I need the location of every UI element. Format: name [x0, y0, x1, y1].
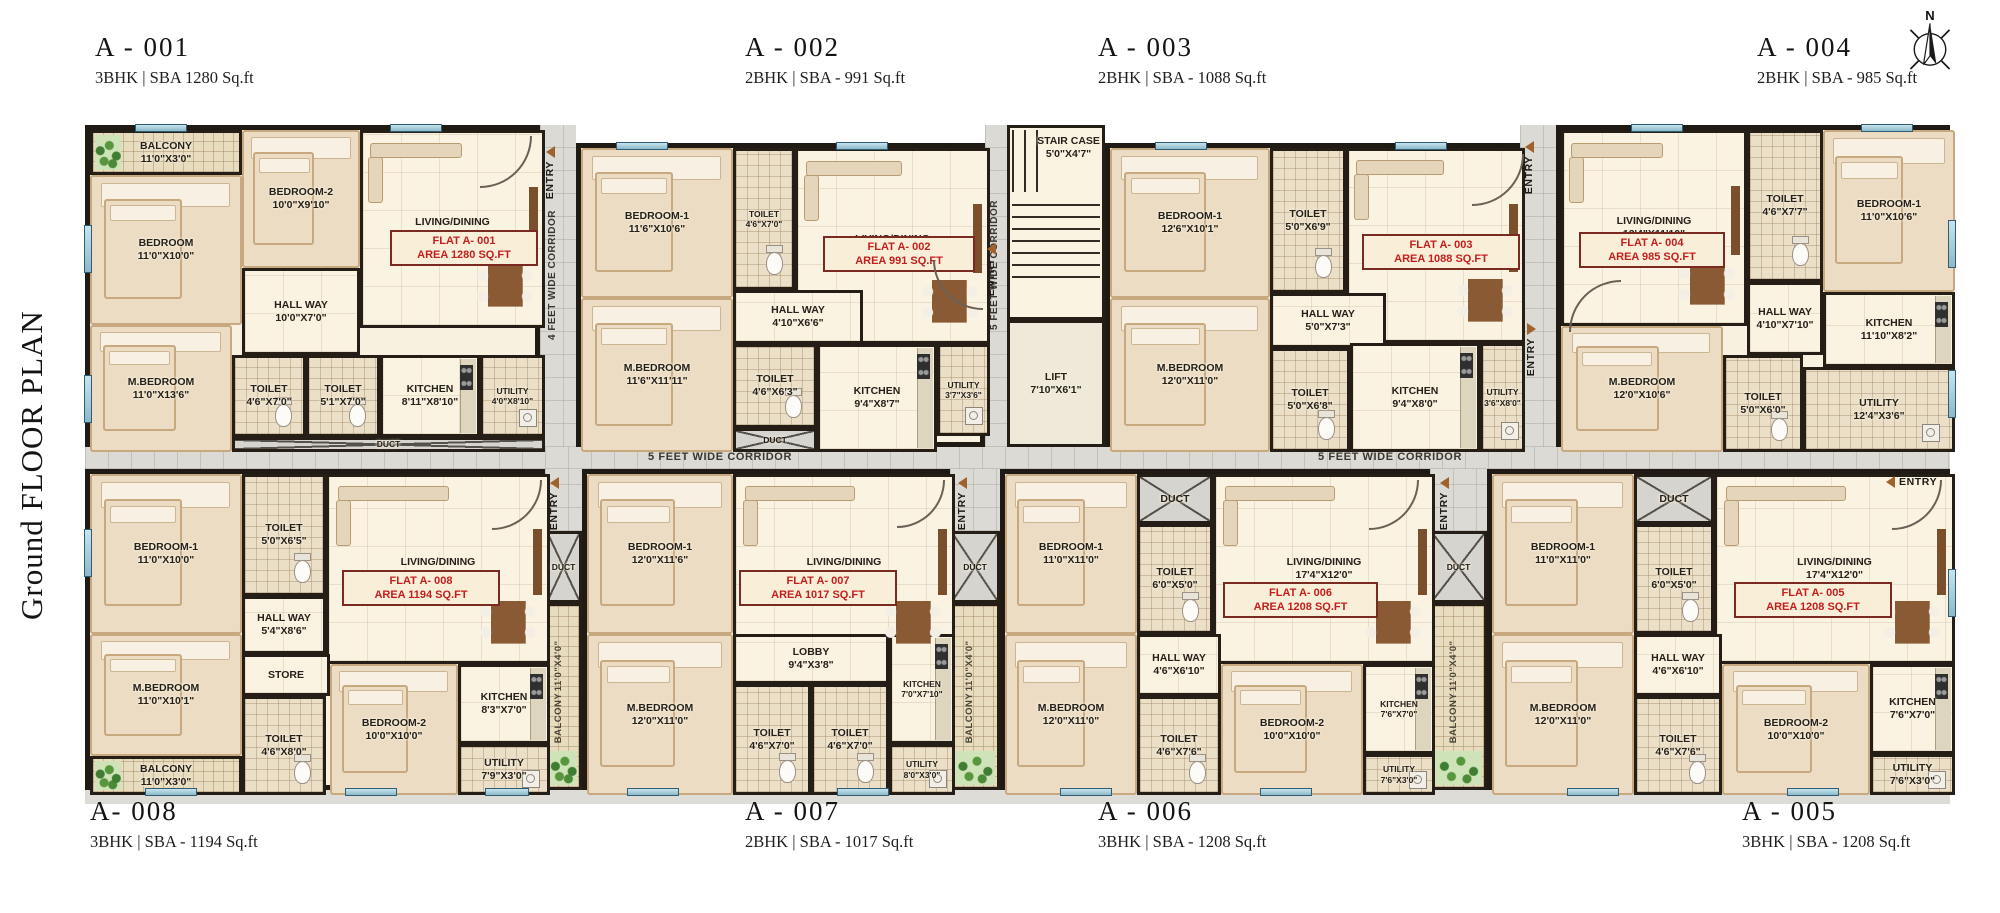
room-a-001-utility-label: UTILITY4'0"X8'10" [483, 358, 542, 434]
room-a-005-hall-way-dims: 4'6"X6'10" [1652, 665, 1703, 678]
plants-icon [1435, 751, 1482, 785]
flat-a-007: BEDROOM-112'0"X11'6"LIVING/DINING16'9"X1… [582, 469, 950, 790]
room-a-007-bedroom-1-label: BEDROOM-112'0"X11'6" [589, 476, 731, 632]
room-a-005-toilet-name: TOILET [1655, 566, 1692, 579]
room-a-008-kitchen-label: KITCHEN8'3"X7'0" [461, 667, 547, 741]
room-a-008-bedroom-2-label: BEDROOM-210'0"X10'0" [332, 666, 456, 793]
flat-label: FLAT A- 007 [787, 574, 850, 588]
room-a-008-utility-label: UTILITY7'9"X3'0" [461, 747, 547, 792]
unit-header-a-004: A - 0042BHK | SBA - 985 Sq.ft [1757, 32, 1917, 88]
corridor-label: 5 FEET WIDE CORRIDOR [1318, 451, 1462, 463]
room-a-002-toilet-label: TOILET4'6"X7'0" [736, 151, 792, 287]
room-a-006-kitchen-name: KITCHEN [1380, 699, 1418, 709]
room-a-006-bedroom-2-name: BEDROOM-2 [1260, 717, 1324, 730]
room-a-007-toilet-label: TOILET4'6"X7'0" [736, 687, 808, 792]
room-a-001-toilet-label: TOILET4'6"X7'0" [235, 358, 303, 434]
unit-spec: 3BHK | SBA - 1194 Sq.ft [90, 832, 258, 852]
room-a-006-toilet: TOILET6'0"X5'0" [1137, 524, 1213, 634]
room-a-004-bedroom-1-label: BEDROOM-111'0"X10'6" [1825, 132, 1953, 290]
unit-id: A - 001 [95, 32, 254, 63]
room-a-001-m-bedroom-dims: 11'0"X13'6" [133, 389, 189, 402]
room-a-007-lobby-label: LOBBY9'4"X3'8" [736, 637, 886, 681]
room-a-001-m-bedroom: M.BEDROOM11'0"X13'6" [90, 325, 232, 452]
room-a-005-utility: UTILITY7'6"X3'0" [1870, 754, 1955, 795]
entry-arrow-icon [550, 477, 559, 489]
room-a-007-kitchen-name: KITCHEN [903, 679, 941, 689]
room-a-001-bedroom-label: BEDROOM11'0"X10'0" [92, 177, 240, 323]
room-a-004-toilet-label: TOILET5'0"X6'0" [1726, 358, 1800, 449]
room-a-001-kitchen-name: KITCHEN [407, 383, 454, 396]
unit-spec: 3BHK | SBA - 1208 Sq.ft [1098, 832, 1266, 852]
room-a-008-store: STORE [242, 654, 330, 696]
room-a-005-toilet-dims: 6'0"X5'0" [1651, 579, 1696, 592]
flat-label: FLAT A- 002 [868, 240, 931, 254]
room-a-005-bedroom-2: BEDROOM-210'0"X10'0" [1722, 664, 1870, 795]
room-a-002-bedroom-1-dims: 11'6"X10'6" [629, 223, 685, 236]
room-a-001-bedroom-2-name: BEDROOM-2 [269, 186, 333, 199]
room-a-001-toilet-label: TOILET5'1"X7'0" [309, 358, 377, 434]
entry-marker: ENTRY [956, 477, 968, 530]
duct-label: DUCT [548, 534, 579, 600]
room-a-008-m-bedroom-name: M.BEDROOM [133, 682, 200, 695]
flat-label: FLAT A- 006 [1269, 586, 1332, 600]
room-a-001-toilet-name: TOILET [250, 383, 287, 396]
room-a-003-hall-way: HALL WAY5'0"X7'3" [1270, 293, 1386, 348]
room-a-007-toilet: TOILET4'6"X7'0" [811, 684, 889, 795]
room-a-005-toilet: TOILET6'0"X5'0" [1634, 524, 1714, 634]
room-a-003-toilet-dims: 5'0"X6'9" [1285, 221, 1330, 234]
window-marker [145, 788, 197, 796]
flat-a-006: BEDROOM-111'0"X11'0"DUCTTOILET6'0"X5'0"L… [1000, 469, 1430, 790]
room-a-002-toilet-name: TOILET [756, 373, 793, 386]
room-a-005-duct: DUCT [1634, 474, 1714, 524]
entry-arrow-icon [546, 146, 555, 158]
page-title: Ground FLOOR PLAN [14, 222, 50, 708]
flat-area-label: AREA 1208 SQ.FT [1766, 600, 1860, 614]
flat-area-label: AREA 1194 SQ.FT [374, 588, 467, 602]
window-marker [1787, 788, 1839, 796]
room-a-005-utility-dims: 7'6"X3'0" [1890, 775, 1935, 788]
room-a-007-toilet: TOILET4'6"X7'0" [733, 684, 811, 795]
room-a-002-kitchen-label: KITCHEN9'4"X8'7" [820, 347, 934, 449]
flat-label: FLAT A- 004 [1621, 236, 1684, 250]
lift-label: LIFT7'10"X6'1" [1010, 323, 1102, 444]
entry-marker: ENTRY [1523, 141, 1535, 194]
room-a-007-toilet-name: TOILET [753, 727, 790, 740]
room-a-003-hall-way-dims: 5'0"X7'3" [1305, 321, 1350, 334]
room-a-003-toilet-label: TOILET5'0"X6'8" [1273, 351, 1347, 449]
room-a-007-toilet-dims: 4'6"X7'0" [749, 740, 794, 753]
room-a-003-kitchen-name: KITCHEN [1392, 385, 1439, 398]
room-a-002-bedroom-1-label: BEDROOM-111'6"X10'6" [583, 150, 731, 296]
room-a-001-bedroom-2: BEDROOM-210'0"X9'10" [242, 130, 360, 268]
duct-shaft: DUCT [1430, 531, 1487, 603]
window-marker [836, 142, 888, 150]
duct-name: DUCT [1447, 562, 1471, 572]
room-a-004-toilet-name: TOILET [1744, 391, 1781, 404]
room-a-001-duct-label: DUCT [235, 440, 542, 449]
room-a-008-kitchen-name: KITCHEN [481, 691, 528, 704]
room-a-004-bedroom-1: BEDROOM-111'0"X10'6" [1823, 130, 1955, 292]
room-a-005-toilet-label: TOILET4'6"X7'6" [1637, 699, 1719, 792]
stair-case-label: STAIR CASE5'0"X4'7" [1010, 128, 1102, 317]
room-a-001-duct: DUCT [232, 437, 545, 452]
room-a-008-m-bedroom: M.BEDROOM11'0"X10'1" [90, 634, 242, 756]
window-marker [84, 375, 92, 423]
flat-a-005: BEDROOM-111'0"X11'0"DUCTTOILET6'0"X5'0"L… [1487, 469, 1950, 790]
entry-marker: ENTRY [1438, 477, 1450, 530]
unit-id: A - 002 [745, 32, 905, 63]
room-a-003-bedroom-1: BEDROOM-112'6"X10'1" [1110, 148, 1270, 298]
entry-label: ENTRY [1525, 338, 1537, 376]
unit-id: A - 003 [1098, 32, 1266, 63]
room-a-005-toilet: TOILET4'6"X7'6" [1634, 696, 1722, 795]
room-a-007-lobby-name: LOBBY [793, 646, 830, 659]
room-a-003-bedroom-1-name: BEDROOM-1 [1158, 210, 1222, 223]
flat-id-box: FLAT A- 003AREA 1088 SQ.FT [1362, 234, 1520, 270]
room-a-002-toilet-dims: 4'6"X6'3" [752, 386, 797, 399]
room-a-004-m-bedroom: M.BEDROOM12'0"X10'6" [1561, 326, 1723, 452]
room-a-004-kitchen-label: KITCHEN11'10"X8'2" [1826, 295, 1952, 364]
room-a-006-m-bedroom-label: M.BEDROOM12'0"X11'0" [1007, 636, 1135, 793]
unit-id: A - 004 [1757, 32, 1917, 63]
lift-dims: 7'10"X6'1" [1030, 384, 1081, 397]
unit-spec: 2BHK | SBA - 991 Sq.ft [745, 68, 905, 88]
flat-area-label: AREA 1088 SQ.FT [1394, 252, 1488, 266]
stair-case-name: STAIR CASE [1037, 135, 1100, 148]
plants-icon [955, 751, 995, 785]
room-a-005-m-bedroom-label: M.BEDROOM12'0"X11'0" [1494, 636, 1632, 793]
unit-header-a-003: A - 0032BHK | SBA - 1088 Sq.ft [1098, 32, 1266, 88]
room-a-006-bedroom-2-label: BEDROOM-210'0"X10'0" [1223, 666, 1361, 793]
flat-a-004: LIVING/DINING13'4"X11'10"TOILET4'6"X7'7"… [1556, 125, 1950, 447]
room-a-006-hall-way-dims: 4'6"X6'10" [1153, 665, 1204, 678]
room-a-007-living-dining-name: LIVING/DINING [807, 556, 882, 569]
room-a-006-duct: DUCT [1137, 474, 1213, 524]
room-a-001-bedroom-2-label: BEDROOM-210'0"X9'10" [244, 132, 358, 266]
window-marker [1631, 124, 1683, 132]
room-a-005-bedroom-1: BEDROOM-111'0"X11'0" [1492, 474, 1634, 634]
unit-header-a-001: A - 0013BHK | SBA 1280 Sq.ft [95, 32, 254, 88]
room-a-002-duct-label: DUCT [736, 431, 814, 449]
room-a-003-kitchen: KITCHEN9'4"X8'0" [1350, 343, 1480, 452]
room-a-008-utility-name: UTILITY [484, 757, 524, 770]
room-a-001-balcony-label: BALCONY11'0"X3'0" [93, 133, 239, 172]
room-a-005-kitchen-name: KITCHEN [1889, 696, 1936, 709]
room-a-005-toilet-name: TOILET [1659, 733, 1696, 746]
room-a-003-utility: UTILITY3'6"X8'0" [1480, 343, 1525, 452]
room-a-001-kitchen: KITCHEN8'11"X8'10" [380, 355, 480, 437]
room-a-007-utility-dims: 8'0"X3'0" [904, 770, 941, 780]
window-marker [1861, 124, 1913, 132]
flat-area-label: AREA 1017 SQ.FT [771, 588, 865, 602]
room-a-005-kitchen: KITCHEN7'6"X7'0" [1870, 664, 1955, 754]
flat-a-002: BEDROOM-111'6"X10'6"TOILET4'6"X7'0"LIVIN… [576, 143, 985, 447]
room-a-007-kitchen: KITCHEN7'0"X7'10" [889, 634, 955, 744]
unit-spec: 3BHK | SBA - 1208 Sq.ft [1742, 832, 1910, 852]
room-a-005-bedroom-1-name: BEDROOM-1 [1531, 541, 1595, 554]
room-a-006-kitchen-label: KITCHEN7'6"X7'0" [1366, 667, 1432, 751]
room-a-006-living-dining-dims: 17'4"X12'0" [1296, 569, 1353, 582]
window-marker [1155, 142, 1207, 150]
duct-name: DUCT [552, 562, 576, 572]
duct-label: DUCT [1433, 534, 1484, 600]
unit-header-a-007: A - 0072BHK | SBA - 1017 Sq.ft [745, 796, 913, 852]
room-a-004-utility-name: UTILITY [1859, 397, 1899, 410]
room-a-008-kitchen: KITCHEN8'3"X7'0" [458, 664, 550, 744]
room-a-006-utility-dims: 7'6"X3'0" [1381, 775, 1418, 785]
room-a-004-kitchen: KITCHEN11'10"X8'2" [1823, 292, 1955, 367]
room-a-002-bedroom-1-name: BEDROOM-1 [625, 210, 689, 223]
room-a-008-hall-way-label: HALL WAY5'4"X8'6" [245, 599, 323, 651]
room-a-003-m-bedroom-dims: 12'0"X11'0" [1162, 375, 1218, 388]
room-a-007-m-bedroom-name: M.BEDROOM [627, 702, 694, 715]
room-a-007-bedroom-1: BEDROOM-112'0"X11'6" [587, 474, 733, 634]
room-a-007-utility-label: UTILITY8'0"X3'0" [892, 747, 952, 792]
unit-header-a-002: A - 0022BHK | SBA - 991 Sq.ft [745, 32, 905, 88]
room-a-003-utility-name: UTILITY [1486, 387, 1518, 397]
room-a-007-lobby-dims: 9'4"X3'8" [788, 659, 833, 672]
room-a-003-utility-dims: 3'6"X8'0" [1484, 398, 1521, 408]
room-a-007-toilet-label: TOILET4'6"X7'0" [814, 687, 886, 792]
room-a-004-toilet-dims: 5'0"X6'0" [1740, 404, 1785, 417]
balcony-dims: 11'0"X4'0" [553, 640, 564, 691]
room-a-005-bedroom-2-dims: 10'0"X10'0" [1768, 730, 1825, 743]
room-a-006-utility-name: UTILITY [1383, 764, 1415, 774]
room-a-008-m-bedroom-label: M.BEDROOM11'0"X10'1" [92, 636, 240, 754]
flat-a-001: BALCONY11'0"X3'0"BEDROOM11'0"X10'0"BEDRO… [85, 125, 540, 447]
strip-balcony-label: BALCONY11'0"X4'0" [1448, 640, 1459, 743]
flat-id-box: FLAT A- 001AREA 1280 SQ.FT [390, 230, 538, 266]
window-marker [390, 124, 442, 132]
window-marker [1948, 220, 1956, 268]
entry-arrow-icon [1440, 477, 1449, 489]
flat-id-box: FLAT A- 008AREA 1194 SQ.FT [342, 570, 500, 606]
window-marker [837, 788, 889, 796]
room-a-004-kitchen-dims: 11'10"X8'2" [1861, 330, 1917, 343]
room-a-004-utility-dims: 12'4"X3'6" [1853, 410, 1904, 423]
room-a-001-utility-name: UTILITY [496, 386, 528, 396]
flat-label: FLAT A- 001 [433, 234, 496, 248]
room-a-003-toilet: TOILET5'0"X6'8" [1270, 348, 1350, 452]
room-a-002-utility-dims: 3'7"X3'6" [945, 390, 982, 400]
entry-label: ENTRY [1523, 156, 1535, 194]
room-a-001-toilet-dims: 5'1"X7'0" [320, 396, 365, 409]
room-a-007-bedroom-1-name: BEDROOM-1 [628, 541, 692, 554]
flat-id-box: FLAT A- 005AREA 1208 SQ.FT [1734, 582, 1892, 618]
room-a-008-toilet: TOILET5'0"X6'5" [242, 474, 326, 596]
duct-label: DUCT [953, 534, 997, 600]
room-a-003-m-bedroom: M.BEDROOM12'0"X11'0" [1110, 298, 1270, 452]
room-a-003-hall-way-name: HALL WAY [1301, 308, 1355, 321]
room-a-007-m-bedroom-label: M.BEDROOM12'0"X11'0" [589, 636, 731, 793]
unit-id: A - 005 [1742, 796, 1910, 827]
room-a-008-toilet-name: TOILET [265, 733, 302, 746]
room-a-008-bedroom-1-name: BEDROOM-1 [134, 541, 198, 554]
room-a-001-duct-name: DUCT [377, 439, 401, 449]
flat-label: FLAT A- 005 [1782, 586, 1845, 600]
entry-marker: ENTRY [985, 243, 997, 296]
window-marker [616, 142, 668, 150]
unit-spec: 2BHK | SBA - 1088 Sq.ft [1098, 68, 1266, 88]
room-a-008-toilet-name: TOILET [265, 522, 302, 535]
flat-id-box: FLAT A- 006AREA 1208 SQ.FT [1223, 582, 1378, 618]
unit-spec: 2BHK | SBA - 1017 Sq.ft [745, 832, 913, 852]
room-a-004-toilet-label: TOILET4'6"X7'7" [1750, 133, 1820, 279]
balcony-name: BALCONY [1448, 693, 1459, 743]
room-a-005-bedroom-1-label: BEDROOM-111'0"X11'0" [1494, 476, 1632, 632]
strip-balcony-label: BALCONY11'0"X4'0" [964, 640, 975, 743]
room-a-001-utility-dims: 4'0"X8'10" [492, 396, 533, 406]
room-a-008-bedroom-1-label: BEDROOM-111'0"X10'0" [92, 476, 240, 632]
room-a-003-toilet: TOILET5'0"X6'9" [1270, 148, 1346, 293]
room-a-008-toilet-label: TOILET4'6"X8'0" [245, 699, 323, 792]
room-a-006-bedroom-1-label: BEDROOM-111'0"X11'0" [1007, 476, 1135, 632]
room-a-002-utility-name: UTILITY [947, 380, 979, 390]
room-a-001-bedroom-2-dims: 10'0"X9'10" [273, 199, 330, 212]
entry-label: ENTRY [956, 492, 968, 530]
room-a-001-hall-way-name: HALL WAY [274, 299, 328, 312]
window-marker [1948, 569, 1956, 617]
room-a-001-toilet: TOILET4'6"X7'0" [232, 355, 306, 437]
strip-balcony-label: BALCONY11'0"X4'0" [553, 640, 564, 743]
room-a-002-kitchen-dims: 9'4"X8'7" [854, 398, 899, 411]
room-a-008-toilet-dims: 4'6"X8'0" [261, 746, 306, 759]
room-a-006-m-bedroom-dims: 12'0"X11'0" [1043, 715, 1099, 728]
room-a-006-toilet: TOILET4'6"X7'6" [1137, 696, 1221, 795]
entry-arrow-icon [1527, 323, 1536, 335]
window-marker [485, 788, 529, 796]
room-a-004-m-bedroom-name: M.BEDROOM [1609, 376, 1676, 389]
room-a-001-kitchen-label: KITCHEN8'11"X8'10" [383, 358, 477, 434]
balcony-name: BALCONY [964, 693, 975, 743]
entry-arrow-icon [1886, 476, 1895, 488]
room-a-006-bedroom-1-dims: 11'0"X11'0" [1043, 554, 1099, 567]
entry-label: ENTRY [544, 161, 556, 199]
room-a-004-hall-way-name: HALL WAY [1758, 306, 1812, 319]
room-a-002-kitchen-name: KITCHEN [854, 385, 901, 398]
flat-id-box: FLAT A- 007AREA 1017 SQ.FT [739, 570, 897, 606]
room-a-002-duct-name: DUCT [763, 435, 787, 445]
window-marker [84, 529, 92, 577]
plants-icon [550, 751, 577, 785]
unit-spec: 3BHK | SBA 1280 Sq.ft [95, 68, 254, 88]
room-a-006-kitchen: KITCHEN7'6"X7'0" [1363, 664, 1435, 754]
room-a-002-hall-way-dims: 4'10"X6'6" [772, 317, 823, 330]
stair-case-dims: 5'0"X4'7" [1046, 148, 1091, 161]
entry-arrow-icon [1525, 141, 1534, 153]
room-a-002-m-bedroom-name: M.BEDROOM [624, 362, 691, 375]
room-a-001-living-dining-name: LIVING/DINING [415, 216, 490, 229]
room-a-004-kitchen-name: KITCHEN [1866, 317, 1913, 330]
room-a-008-kitchen-dims: 8'3"X7'0" [481, 704, 526, 717]
room-a-004-toilet-name: TOILET [1766, 193, 1803, 206]
room-a-002-hall-way-label: HALL WAY4'10"X6'6" [736, 293, 860, 341]
floor-plan-canvas: Ground FLOOR PLAN N 5 FEET WIDE CORRIDOR… [0, 0, 2000, 913]
room-a-002-hall-way-name: HALL WAY [771, 304, 825, 317]
flat-area-label: AREA 1208 SQ.FT [1254, 600, 1348, 614]
unit-header-a-006: A - 0063BHK | SBA - 1208 Sq.ft [1098, 796, 1266, 852]
entry-marker: ENTRY [544, 146, 556, 199]
flat-label: FLAT A- 003 [1410, 238, 1473, 252]
corridor-label: 5 FEET WIDE CORRIDOR [648, 451, 792, 463]
flat-area-label: AREA 1280 SQ.FT [417, 248, 511, 262]
room-a-004-living-dining-name: LIVING/DINING [1617, 215, 1692, 228]
room-a-008-store-name: STORE [268, 669, 304, 682]
room-a-005-living-dining-name: LIVING/DINING [1797, 556, 1872, 569]
room-a-008-store-label: STORE [245, 657, 327, 693]
room-a-008-bedroom-2: BEDROOM-210'0"X10'0" [330, 664, 458, 795]
room-a-007-kitchen-label: KITCHEN7'0"X7'10" [892, 637, 952, 741]
flat-a-003: BEDROOM-112'6"X10'1"TOILET5'0"X6'9"LIVIN… [1105, 143, 1520, 447]
flat-area-label: AREA 985 SQ.FT [1608, 250, 1696, 264]
room-a-006-bedroom-1-name: BEDROOM-1 [1039, 541, 1103, 554]
room-a-003-toilet-dims: 5'0"X6'8" [1287, 400, 1332, 413]
room-a-005-living-dining-dims: 17'4"X12'0" [1806, 569, 1863, 582]
room-a-001-balcony-name: BALCONY [140, 140, 192, 153]
room-a-006-duct-label: DUCT [1140, 477, 1210, 521]
window-marker [1395, 142, 1447, 150]
unit-spec: 2BHK | SBA - 985 Sq.ft [1757, 68, 1917, 88]
room-a-003-toilet-name: TOILET [1291, 387, 1328, 400]
room-a-006-m-bedroom: M.BEDROOM12'0"X11'0" [1005, 634, 1137, 795]
room-a-007-toilet-name: TOILET [831, 727, 868, 740]
window-marker [1948, 370, 1956, 418]
room-a-004-utility: UTILITY12'4"X3'6" [1803, 367, 1955, 452]
room-a-006-bedroom-2: BEDROOM-210'0"X10'0" [1221, 664, 1363, 795]
entry-marker: ENTRY [1525, 323, 1537, 376]
unit-id: A- 008 [90, 796, 258, 827]
room-a-008-toilet-dims: 5'0"X6'5" [261, 535, 306, 548]
room-a-003-m-bedroom-name: M.BEDROOM [1157, 362, 1224, 375]
room-a-002-toilet-dims: 4'6"X7'0" [746, 219, 783, 229]
room-a-003-toilet-label: TOILET5'0"X6'9" [1273, 151, 1343, 290]
room-a-006-toilet-dims: 4'6"X7'6" [1156, 746, 1201, 759]
room-a-007-bedroom-1-dims: 12'0"X11'6" [632, 554, 688, 567]
entry-marker: ENTRY [1886, 476, 1937, 488]
entry-marker: ENTRY [548, 477, 560, 530]
room-a-005-m-bedroom-name: M.BEDROOM [1530, 702, 1597, 715]
room-a-005-hall-way: HALL WAY4'6"X6'10" [1634, 634, 1722, 696]
room-a-005-m-bedroom-dims: 12'0"X11'0" [1535, 715, 1591, 728]
room-a-002-m-bedroom-dims: 11'6"X11'11" [626, 375, 687, 388]
room-a-005-duct-name: DUCT [1659, 493, 1688, 506]
room-a-007-m-bedroom: M.BEDROOM12'0"X11'0" [587, 634, 733, 795]
room-a-006-toilet-label: TOILET4'6"X7'6" [1140, 699, 1218, 792]
room-a-008-bedroom-1: BEDROOM-111'0"X10'0" [90, 474, 242, 634]
room-a-003-m-bedroom-label: M.BEDROOM12'0"X11'0" [1112, 300, 1268, 450]
room-a-002-bedroom-1: BEDROOM-111'6"X10'6" [581, 148, 733, 298]
strip-balcony [950, 603, 1000, 790]
room-a-006-bedroom-2-dims: 10'0"X10'0" [1264, 730, 1321, 743]
compass-n-label: N [1925, 8, 1934, 23]
room-a-008-toilet: TOILET4'6"X8'0" [242, 696, 326, 795]
duct-name: DUCT [963, 562, 987, 572]
room-a-006-toilet-name: TOILET [1156, 566, 1193, 579]
room-a-007-kitchen-dims: 7'0"X7'10" [901, 689, 942, 699]
room-a-004-m-bedroom-label: M.BEDROOM12'0"X10'6" [1563, 328, 1721, 450]
room-a-003-hall-way-label: HALL WAY5'0"X7'3" [1273, 296, 1383, 345]
room-a-006-toilet-name: TOILET [1160, 733, 1197, 746]
room-a-004-toilet-dims: 4'6"X7'7" [1762, 206, 1807, 219]
room-a-004-m-bedroom-dims: 12'0"X10'6" [1614, 389, 1671, 402]
room-a-001-bedroom-name: BEDROOM [139, 237, 194, 250]
balcony-dims: 11'0"X4'0" [1448, 640, 1459, 691]
room-a-001-hall-way-dims: 10'0"X7'0" [275, 312, 326, 325]
room-a-005-kitchen-dims: 7'6"X7'0" [1890, 709, 1935, 722]
room-a-001-bedroom-dims: 11'0"X10'0" [138, 250, 194, 263]
unit-header-a-008: A- 0083BHK | SBA - 1194 Sq.ft [90, 796, 258, 852]
